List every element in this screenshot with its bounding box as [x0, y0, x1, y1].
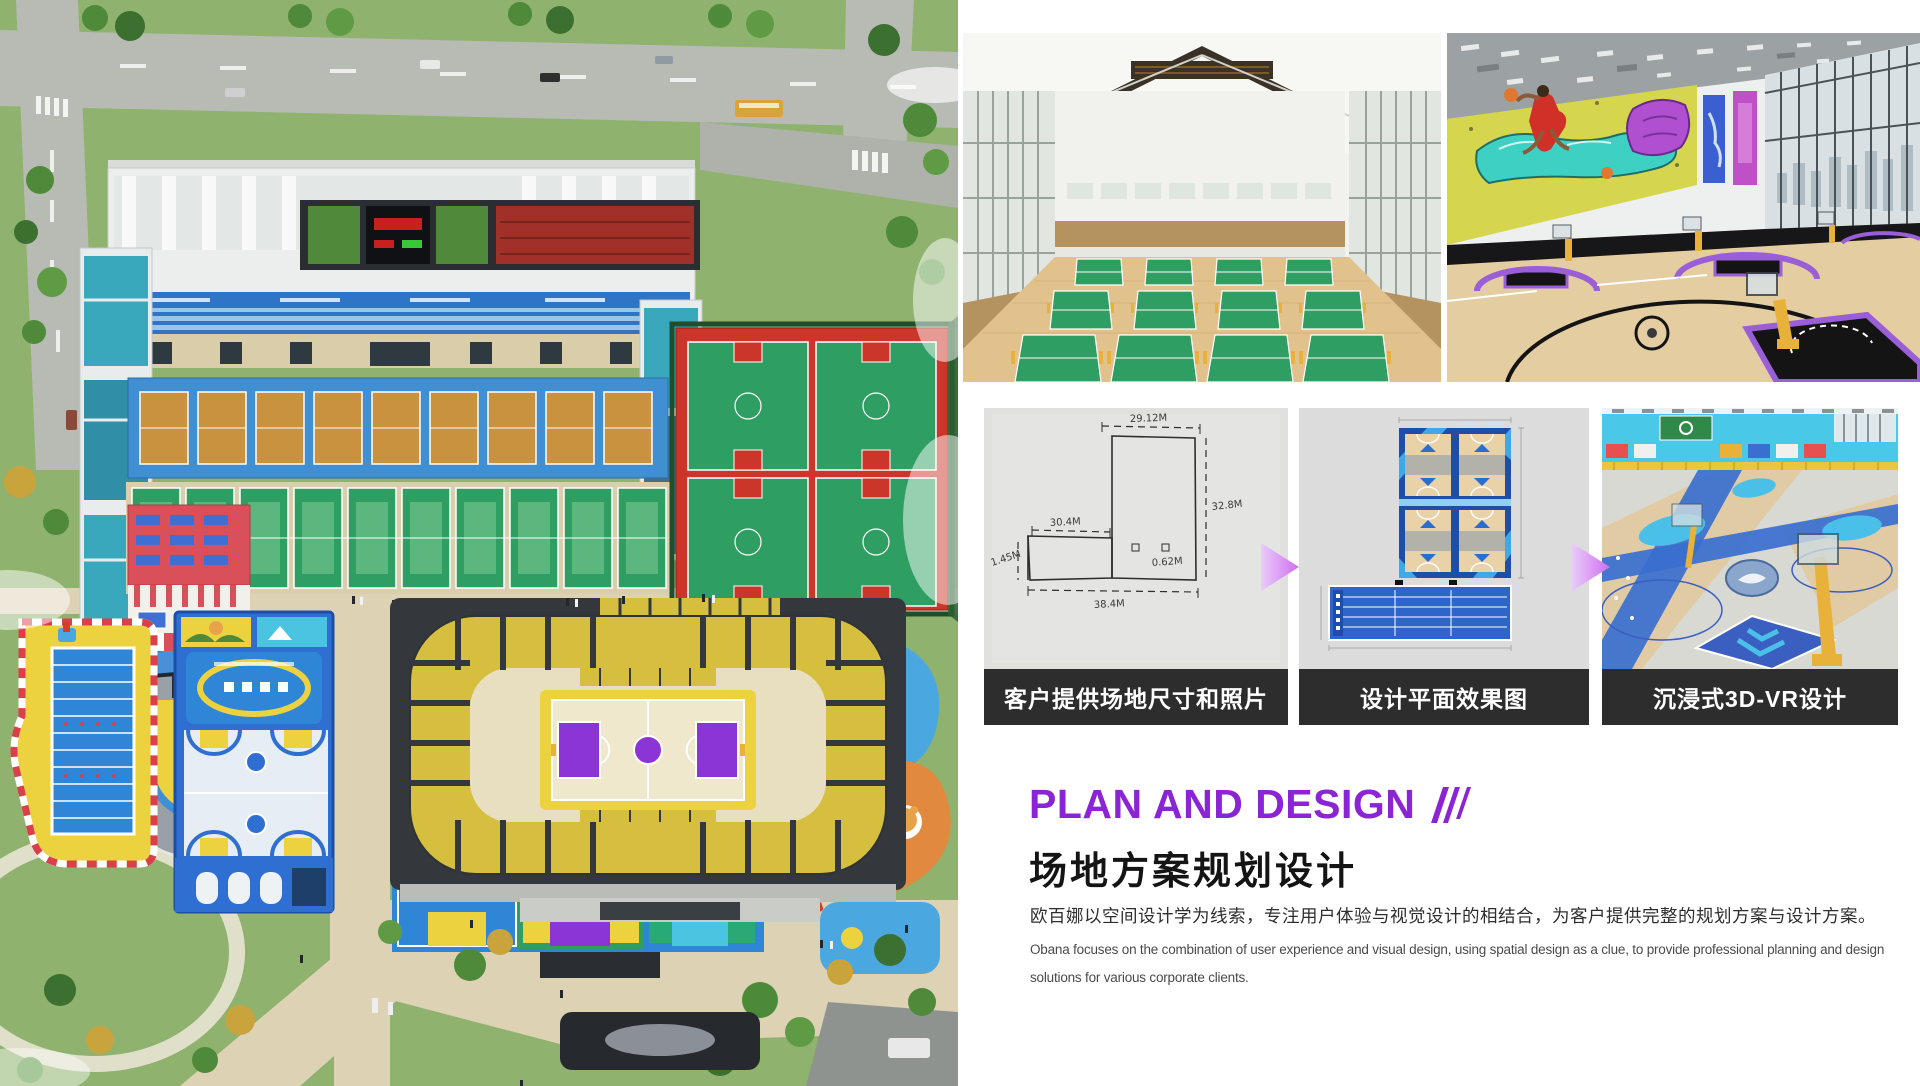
- gym-windows: [1765, 43, 1920, 229]
- slashes-icon: [1429, 785, 1473, 825]
- plan-image: [1299, 408, 1589, 669]
- process-caption-1: 客户提供场地尺寸和照片: [1004, 680, 1268, 714]
- section-title-en-text: PLAN AND DESIGN: [1029, 781, 1415, 828]
- sketch-dim-bottom: 38.4M: [1094, 598, 1125, 611]
- hall-back-wall: [1055, 91, 1345, 257]
- sketch-dim-mid: 30.4M: [1050, 516, 1081, 529]
- multi-sport-box: [175, 612, 333, 912]
- process-arrow-icon: [1261, 543, 1299, 591]
- sketch-dim-top: 29.12M: [1130, 413, 1168, 425]
- section-title-en: PLAN AND DESIGN: [1029, 781, 1473, 828]
- section-desc-zh: 欧百娜以空间设计学为线索，专注用户体验与视觉设计的相结合，为客户提供完整的规划方…: [1030, 903, 1876, 928]
- section-desc-en-line1: Obana focuses on the combination of user…: [1030, 936, 1884, 964]
- section-desc-en: Obana focuses on the combination of user…: [1030, 936, 1884, 992]
- process-arrow-icon: [1572, 543, 1610, 591]
- swimming-pool: [14, 622, 154, 864]
- badminton-hall-photo: [963, 33, 1441, 382]
- volleyball-courts: [128, 378, 668, 478]
- process-caption-bar-1: 客户提供场地尺寸和照片: [984, 669, 1288, 725]
- vr-image: [1602, 408, 1898, 669]
- process-card-vr: 沉浸式3D-VR设计: [1602, 408, 1898, 725]
- section-title-zh: 场地方案规划设计: [1029, 840, 1357, 895]
- stadium: [390, 598, 906, 922]
- process-caption-bar-2: 设计平面效果图: [1299, 669, 1589, 725]
- sketch-image: 29.12M 32.8M 30.4M 1.45M 0.62M 38.4M: [984, 408, 1288, 669]
- section-desc-en-line2: solutions for various corporate clients.: [1030, 964, 1884, 992]
- process-card-sketch: 29.12M 32.8M 30.4M 1.45M 0.62M 38.4M 客户提…: [984, 408, 1288, 725]
- basketball-hall-photo: [1447, 33, 1920, 382]
- process-caption-2: 设计平面效果图: [1360, 680, 1528, 714]
- aerial-site-plan-image: [0, 0, 958, 1086]
- page: 29.12M 32.8M 30.4M 1.45M 0.62M 38.4M 客户提…: [0, 0, 1920, 1086]
- sketch-dim-inner: 0.62M: [1151, 556, 1183, 569]
- process-caption-bar-3: 沉浸式3D-VR设计: [1602, 669, 1898, 725]
- process-caption-3: 沉浸式3D-VR设计: [1653, 680, 1847, 714]
- process-card-plan: 设计平面效果图: [1299, 408, 1589, 725]
